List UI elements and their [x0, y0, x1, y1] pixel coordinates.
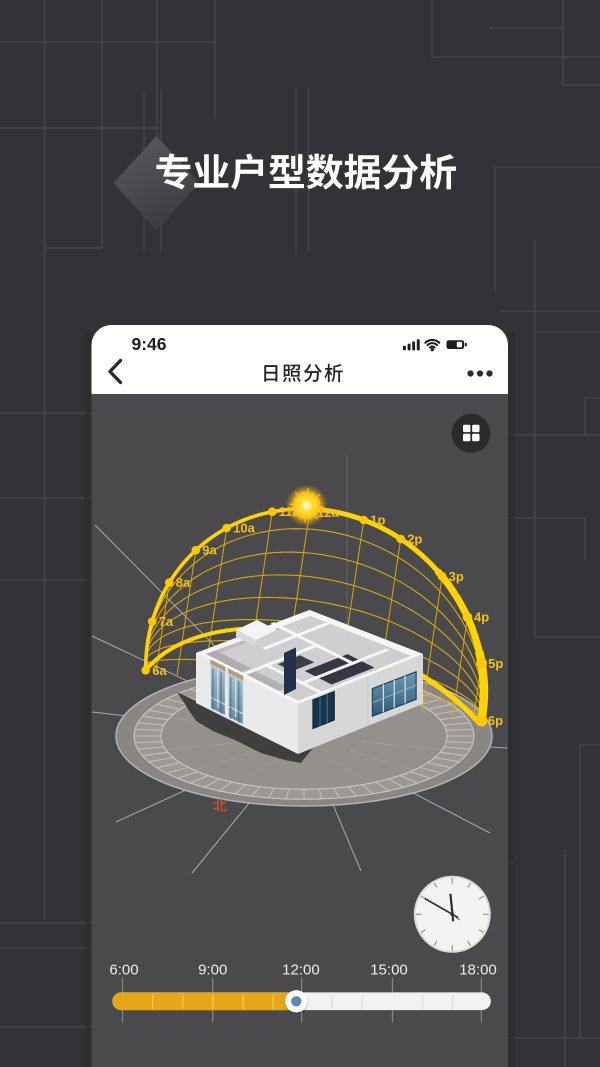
svg-text:6:00: 6:00	[109, 962, 138, 979]
svg-text:15:00: 15:00	[370, 962, 408, 979]
svg-text:8a: 8a	[176, 575, 191, 590]
svg-text:1p: 1p	[370, 513, 385, 528]
svg-text:9:00: 9:00	[198, 962, 227, 979]
svg-text:5p: 5p	[488, 656, 503, 671]
svg-text:6a: 6a	[152, 663, 167, 678]
svg-text:9a: 9a	[202, 543, 217, 558]
svg-text:2p: 2p	[407, 531, 422, 546]
svg-text:6p: 6p	[488, 713, 503, 728]
svg-text:12:00: 12:00	[282, 962, 320, 979]
svg-text:10a: 10a	[233, 521, 255, 536]
svg-text:3p: 3p	[449, 569, 464, 584]
svg-text:18:00: 18:00	[459, 962, 497, 979]
svg-text:7a: 7a	[159, 614, 174, 629]
svg-text:9:46: 9:46	[131, 334, 166, 354]
svg-text:4p: 4p	[474, 610, 489, 625]
